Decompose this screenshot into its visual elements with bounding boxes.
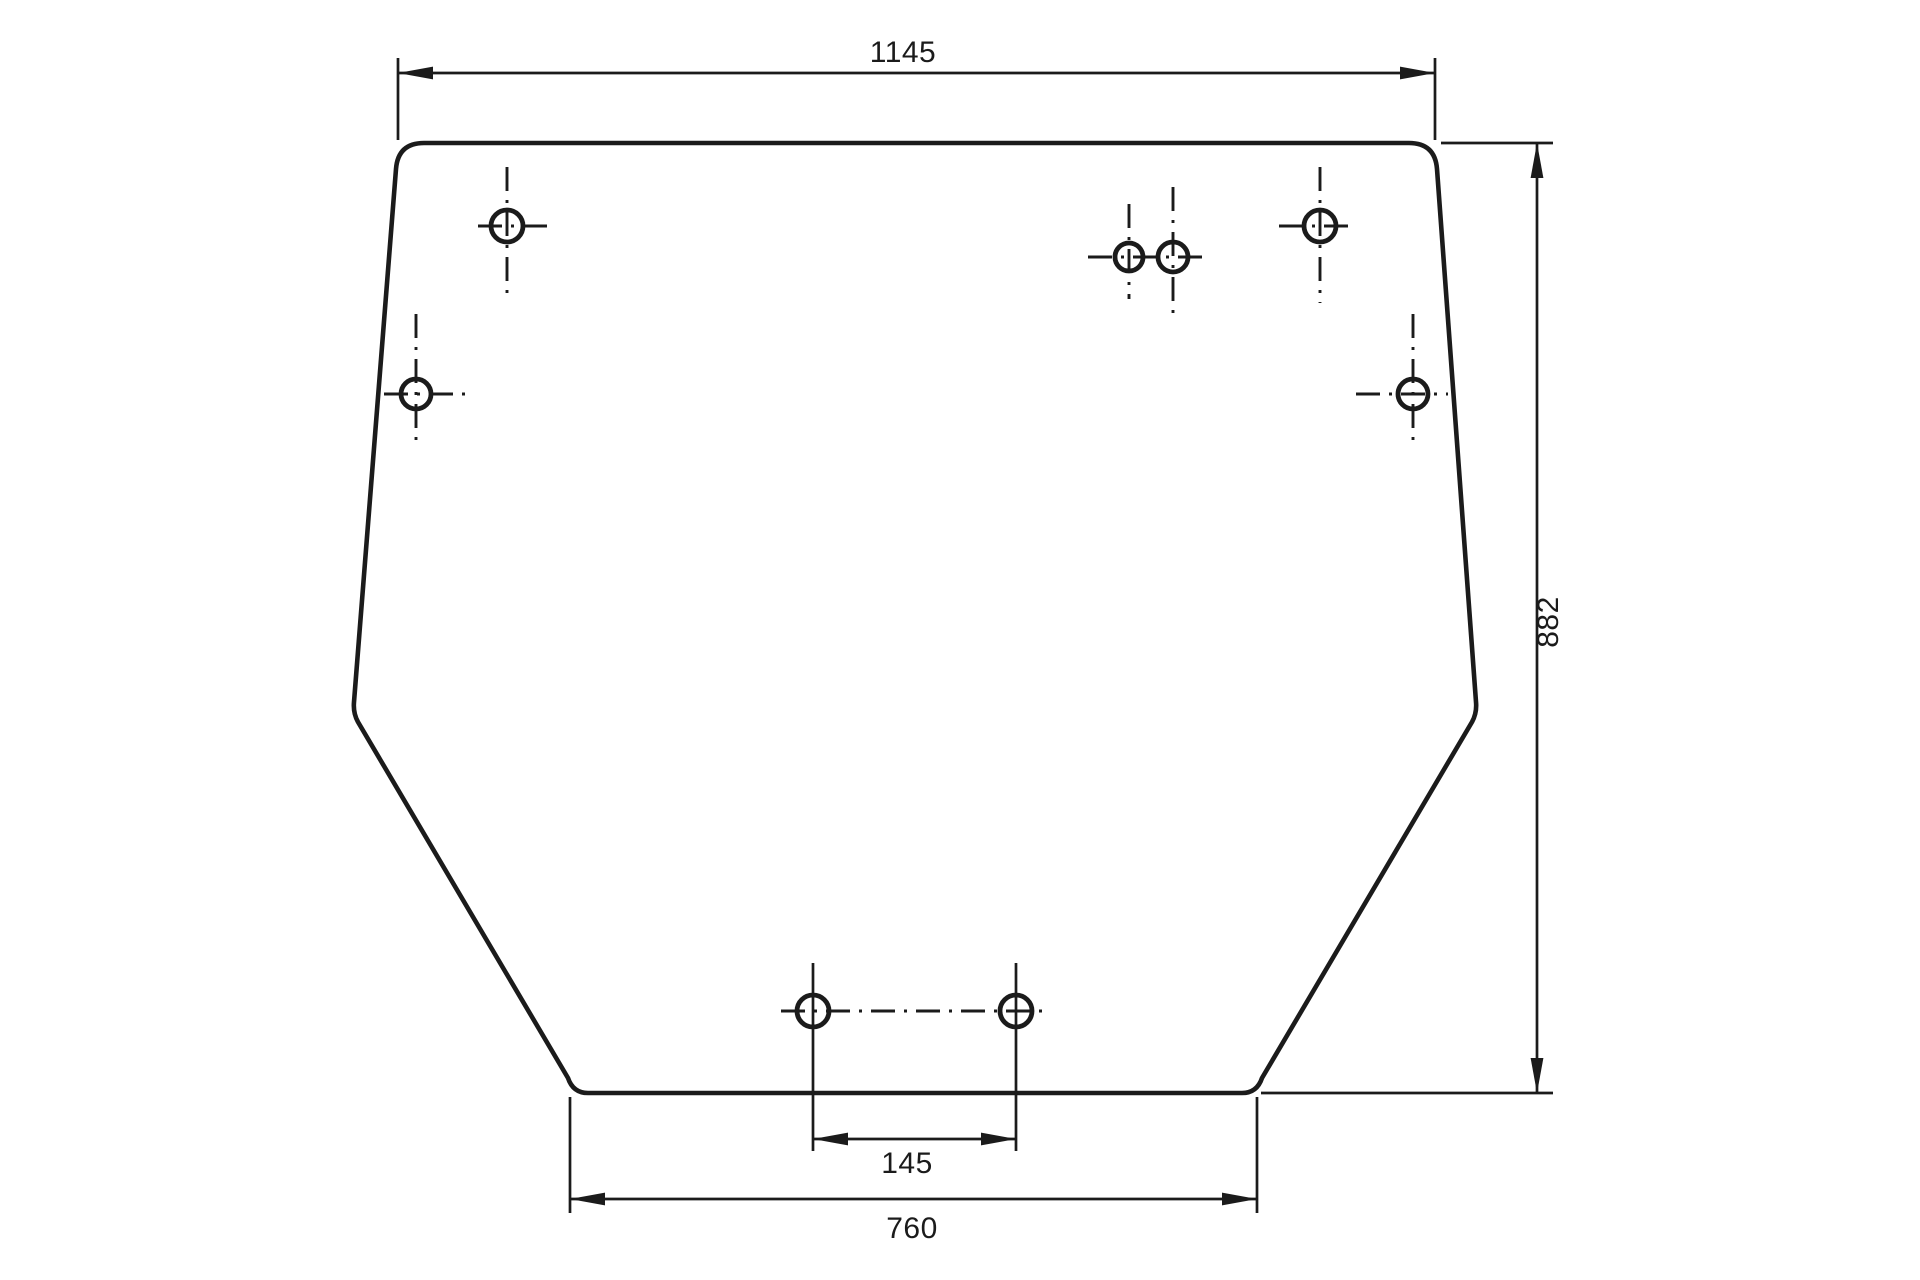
holes: [401, 210, 1428, 1027]
arrowhead-left-icon: [813, 1133, 848, 1146]
dimension-hole-spacing: 145: [813, 963, 1016, 1180]
arrowhead-down-icon: [1531, 1058, 1544, 1093]
arrowhead-right-icon: [1222, 1193, 1257, 1206]
arrowhead-right-icon: [981, 1133, 1016, 1146]
centerlines: [384, 167, 1448, 1011]
arrowhead-left-icon: [570, 1193, 605, 1206]
dimension-label-top-width: 1145: [870, 36, 937, 69]
arrowhead-up-icon: [1531, 143, 1544, 178]
technical-drawing-canvas: 1145 882 760 145: [0, 0, 1920, 1280]
arrowhead-right-icon: [1400, 67, 1435, 80]
dimension-label-right-height: 882: [1532, 596, 1565, 648]
dimension-label-hole-spacing: 145: [881, 1147, 933, 1180]
arrowhead-left-icon: [398, 67, 433, 80]
drawing-page: 1145 882 760 145: [0, 0, 1920, 1280]
dimension-top-width: 1145: [398, 36, 1435, 140]
dimension-label-bottom-width: 760: [886, 1212, 938, 1245]
panel-outline: [354, 143, 1476, 1093]
dimension-right-height: 882: [1261, 143, 1565, 1093]
